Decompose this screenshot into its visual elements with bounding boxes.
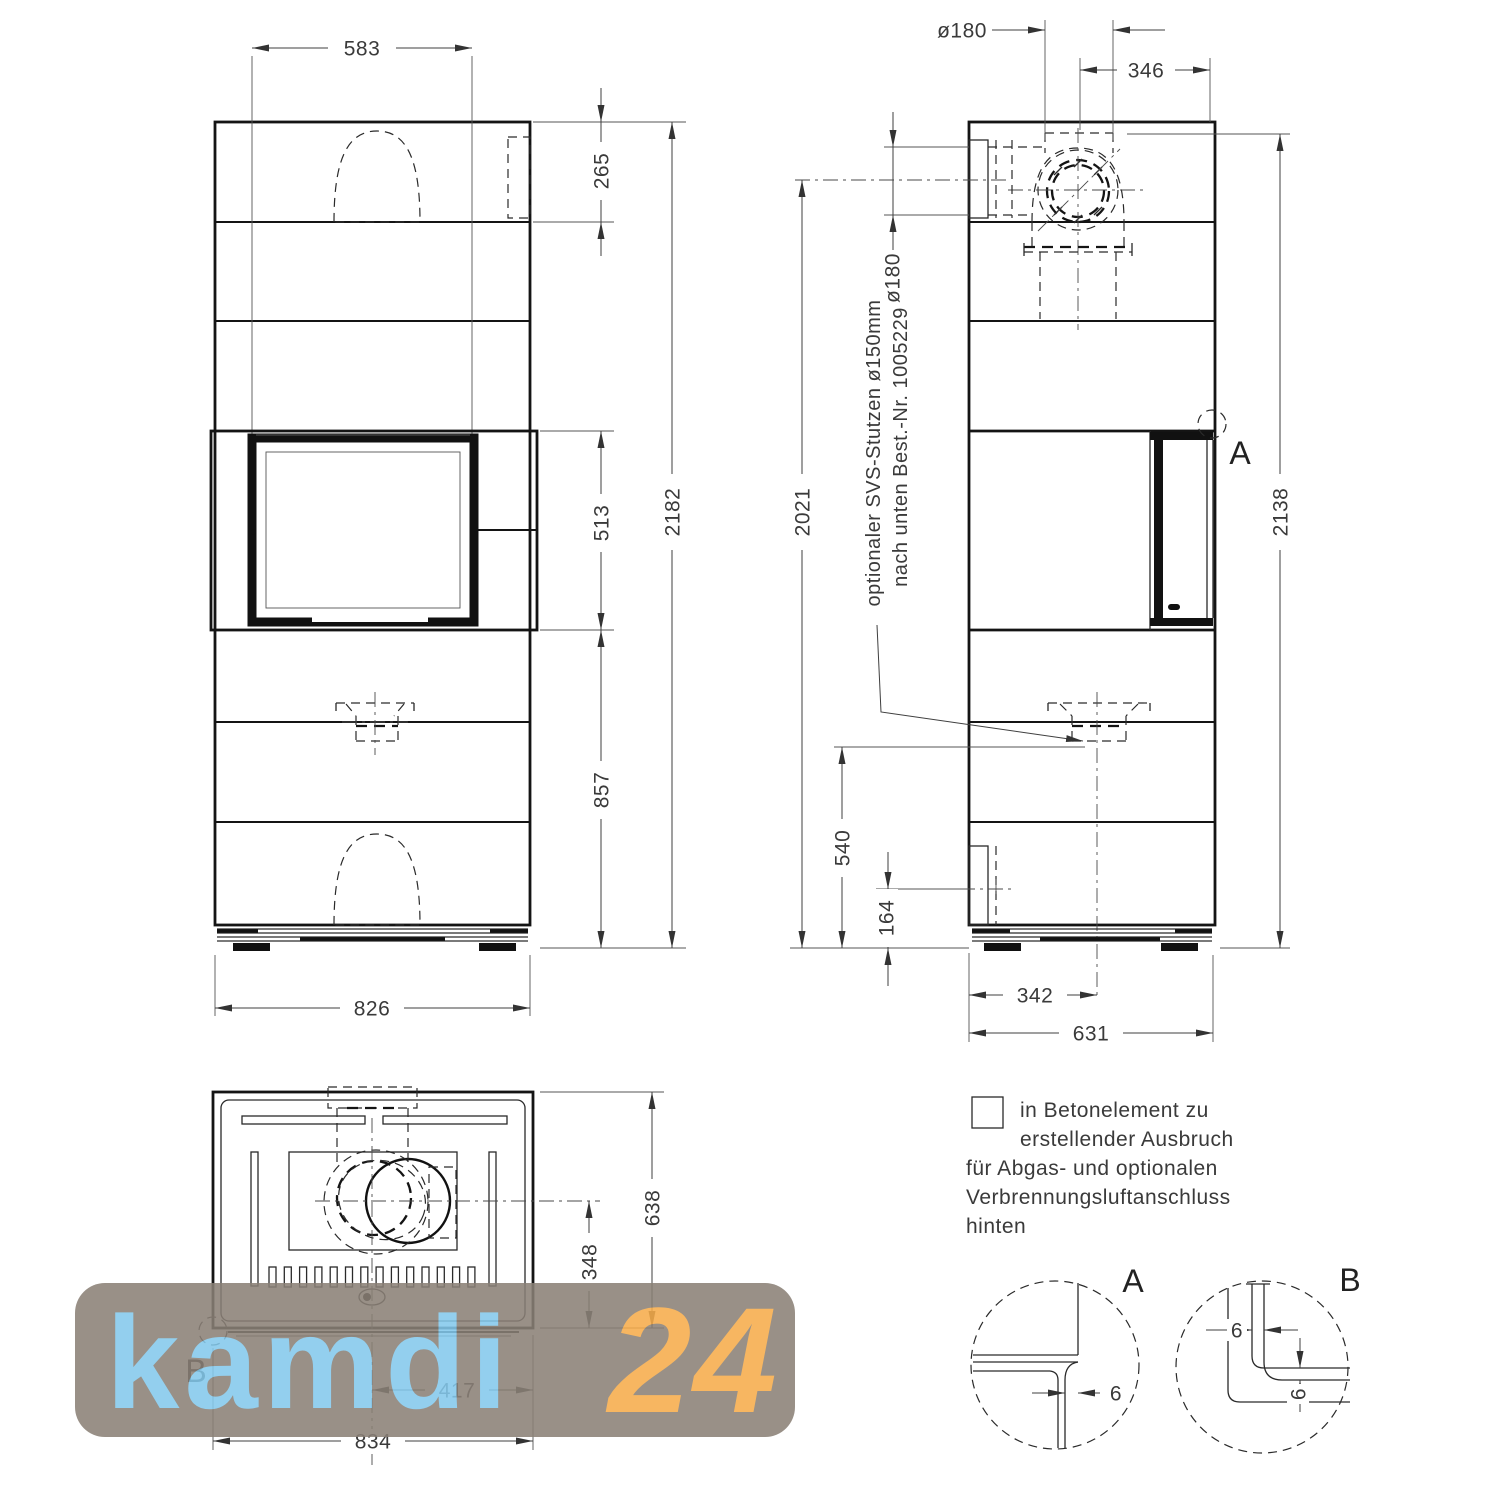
annotation-line2: nach unten Best.-Nr. 1005229 [890,307,912,587]
detail-a: A 6 [971,1263,1144,1449]
dim-front-top-section-height: 265 [591,153,614,190]
dim-air-center-from-rear: 342 [1017,985,1054,1008]
front-top-right-breakout [508,137,530,218]
dim-top-overall-depth: 638 [642,1190,665,1227]
watermark-brand-text: kamdi [106,1289,513,1436]
legend-line-2: erstellender Ausbruch [1020,1128,1234,1151]
dim-front-firebox-height: 513 [591,505,614,542]
door-hinge-dot [251,529,256,534]
legend-line-1: in Betonelement zu [1020,1099,1209,1122]
top-rear-breakout-hatch [328,1087,417,1108]
side-flue-outlet [1008,128,1146,330]
detail-a-gap-dim: 6 [1110,1383,1122,1406]
side-body-outline [969,122,1215,925]
legend-hatch-symbol [972,1097,1003,1128]
detail-b-label: B [1339,1262,1360,1298]
front-firebox-door [252,438,474,622]
dim-rear-outlet-diameter: ø180 [882,253,905,303]
dim-side-overall-height: 2138 [1270,488,1293,537]
dim-flue-center-to-front: 346 [1128,60,1165,83]
side-plinth [972,929,1212,951]
annotation-line1: optionaler SVS-Stutzen ø150mm [863,300,885,607]
detail-a-label: A [1122,1263,1144,1299]
dim-side-overall-depth: 631 [1073,1023,1110,1046]
legend-line-5: hinten [966,1215,1026,1238]
front-air-connection-stub [336,692,414,755]
detail-b-gap-vertical-dim: 6 [1288,1388,1311,1400]
front-top-breakout-hatch [334,131,420,222]
legend-line-3: für Abgas- und optionalen [966,1157,1218,1180]
front-view: 583 265 513 857 [211,36,686,1021]
side-firebox-door [1150,431,1213,630]
dim-top-center-to-front: 348 [579,1244,602,1281]
detail-a-marker-label: A [1229,435,1251,471]
dim-rear-opening-center-height: 164 [876,900,899,937]
drawing-page: 583 265 513 857 [0,0,1500,1500]
stove-technical-drawing: 583 265 513 857 [0,0,1500,1500]
dim-front-overall-width: 826 [354,998,391,1021]
dim-front-lower-height: 857 [591,772,614,809]
side-rear-breakout-top [969,140,1042,218]
detail-b-gap-horizontal-dim: 6 [1231,1320,1243,1343]
dim-front-total-height: 2182 [662,488,685,537]
dim-flue-diameter: ø180 [937,20,987,43]
dim-flue-center-height: 2021 [792,488,815,537]
front-plinth [217,929,528,951]
legend: in Betonelement zu erstellender Ausbruch… [966,1097,1234,1238]
side-view: A [790,20,1293,1046]
watermark: kamdi 24 [75,1276,795,1444]
front-bottom-breakout-hatch [334,834,420,925]
legend-line-4: Verbrennungsluftanschluss [966,1186,1231,1209]
detail-b: B 6 6 [1176,1262,1361,1453]
watermark-number-text: 24 [605,1276,779,1444]
dim-front-insert-width: 583 [344,38,381,61]
dim-air-connection-height: 540 [832,830,855,867]
door-handle [1168,604,1180,610]
annotation-leader [877,625,1083,741]
